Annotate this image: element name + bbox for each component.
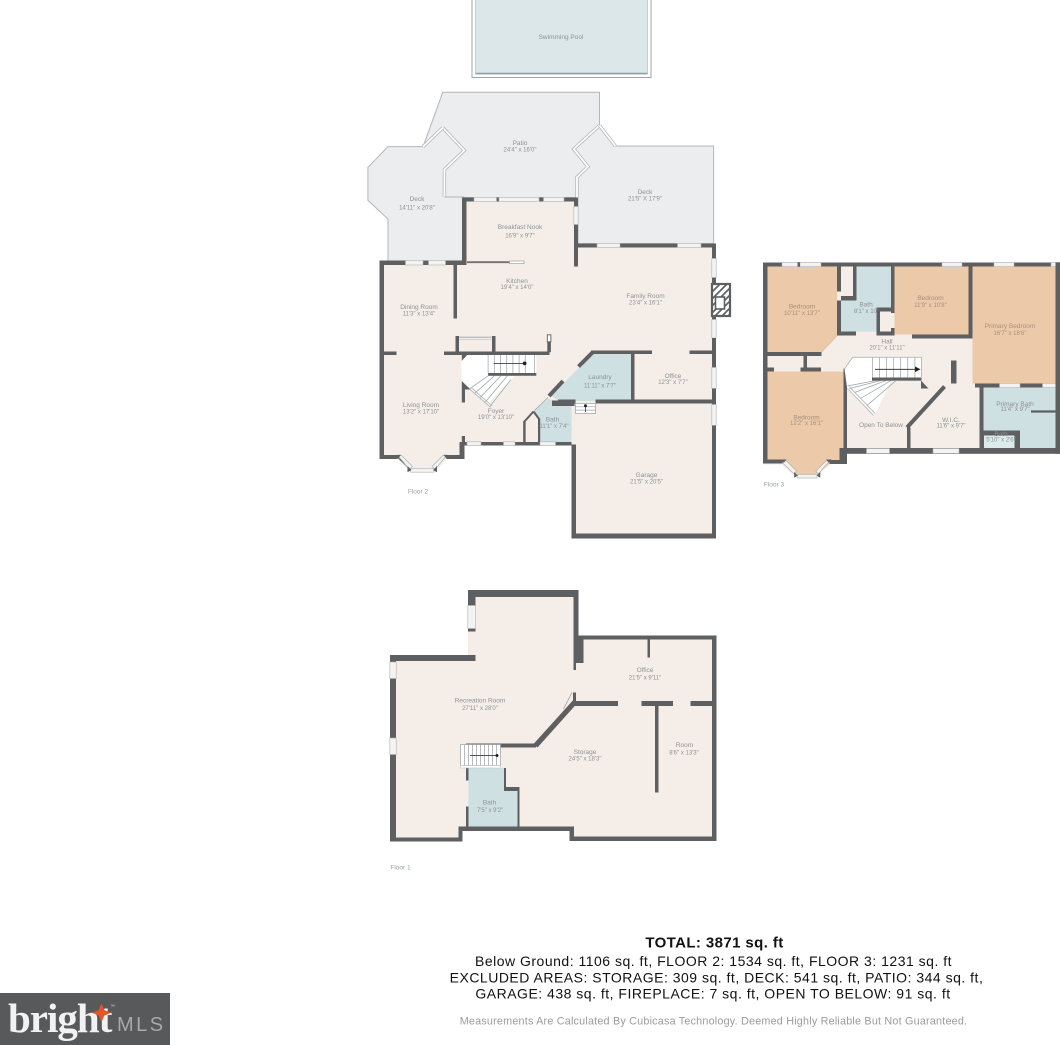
svg-text:Below Ground: 1106 sq. ft, FLO: Below Ground: 1106 sq. ft, FLOOR 2: 1534… <box>475 953 952 969</box>
svg-text:bright: bright <box>8 995 113 1041</box>
svg-text:19'0" x 13'10": 19'0" x 13'10" <box>478 415 514 421</box>
svg-text:™: ™ <box>110 1004 115 1010</box>
svg-text:14'11" x 20'8": 14'11" x 20'8" <box>399 206 435 212</box>
svg-text:23'4" x 16'1": 23'4" x 16'1" <box>629 301 662 307</box>
svg-text:Bedroom: Bedroom <box>917 295 943 302</box>
svg-text:21'5" X 17'9": 21'5" X 17'9" <box>628 197 662 203</box>
svg-text:Deck: Deck <box>638 189 654 196</box>
svg-text:13'2" x 17'10": 13'2" x 17'10" <box>403 409 439 415</box>
svg-text:EXCLUDED AREAS: STORAGE: 309 s: EXCLUDED AREAS: STORAGE: 309 sq. ft, DEC… <box>450 970 984 986</box>
svg-text:21'5" x 9'11": 21'5" x 9'11" <box>629 676 661 682</box>
svg-text:Floor 3: Floor 3 <box>764 482 785 489</box>
svg-text:16'7" x 18'6": 16'7" x 18'6" <box>994 331 1027 337</box>
svg-text:12'3" x 7'7": 12'3" x 7'7" <box>658 380 688 386</box>
svg-text:11'9" x 10'8": 11'9" x 10'8" <box>914 303 946 309</box>
svg-text:Bath: Bath <box>546 417 560 424</box>
svg-text:Swimming Pool: Swimming Pool <box>539 34 584 41</box>
svg-text:10'11" x 13'7": 10'11" x 13'7" <box>784 311 820 317</box>
svg-text:TOTAL: 3871 sq. ft: TOTAL: 3871 sq. ft <box>645 935 783 952</box>
svg-text:11'1" x 7'4": 11'1" x 7'4" <box>539 424 568 430</box>
svg-text:Bath: Bath <box>859 302 873 309</box>
svg-text:Office: Office <box>665 373 682 380</box>
svg-text:Floor 2: Floor 2 <box>408 489 429 496</box>
svg-text:Garage: Garage <box>636 472 658 479</box>
svg-text:Office: Office <box>637 667 654 674</box>
svg-text:24'5" x 18'3": 24'5" x 18'3" <box>569 757 602 763</box>
svg-text:12'2" x 16'1": 12'2" x 16'1" <box>790 421 823 427</box>
svg-text:Open To Below: Open To Below <box>859 422 903 429</box>
svg-text:8'1" x 10': 8'1" x 10' <box>854 309 878 315</box>
svg-text:11'3" x 13'4": 11'3" x 13'4" <box>403 311 435 317</box>
svg-text:Family Room: Family Room <box>626 293 664 300</box>
svg-text:24'4" x 16'0": 24'4" x 16'0" <box>504 148 537 154</box>
svg-text:MLS: MLS <box>117 1014 166 1036</box>
svg-text:Measurements Are Calculated By: Measurements Are Calculated By Cubicasa … <box>460 1016 968 1028</box>
svg-text:Room: Room <box>676 742 693 749</box>
svg-text:7'5" x 9'2": 7'5" x 9'2" <box>477 808 503 814</box>
svg-text:Laundry: Laundry <box>588 374 612 381</box>
svg-text:Dining Room: Dining Room <box>400 304 438 311</box>
svg-text:Recreation Room: Recreation Room <box>455 698 506 705</box>
svg-text:Storage: Storage <box>574 749 597 756</box>
svg-text:19'4" x 14'0": 19'4" x 14'0" <box>501 285 534 291</box>
svg-text:27'11" x 28'0": 27'11" x 28'0" <box>462 706 498 712</box>
svg-text:11'6" x 9'7": 11'6" x 9'7" <box>936 423 965 429</box>
svg-text:Living Room: Living Room <box>403 402 439 409</box>
svg-text:Patio: Patio <box>513 140 528 147</box>
svg-text:Breakfast Nook: Breakfast Nook <box>498 224 543 231</box>
svg-text:20'1" x 11'11": 20'1" x 11'11" <box>869 345 904 351</box>
svg-text:Bath: Bath <box>483 800 497 807</box>
svg-text:Bedroom: Bedroom <box>789 304 815 311</box>
svg-text:Primary Bedroom: Primary Bedroom <box>985 323 1036 330</box>
svg-text:21'5" x 20'5": 21'5" x 20'5" <box>630 480 663 486</box>
svg-text:Foyer: Foyer <box>488 408 505 415</box>
svg-text:Kitchen: Kitchen <box>506 278 528 285</box>
svg-text:GARAGE: 438 sq. ft, FIREPLACE:: GARAGE: 438 sq. ft, FIREPLACE: 7 sq. ft,… <box>475 986 950 1002</box>
svg-text:16'9" x 9'7": 16'9" x 9'7" <box>505 234 535 240</box>
svg-text:Deck: Deck <box>410 196 426 203</box>
svg-text:11'4" x 9'7": 11'4" x 9'7" <box>1000 407 1029 413</box>
svg-text:8'6" x 13'3": 8'6" x 13'3" <box>669 751 699 757</box>
svg-text:11'11" x 7'7": 11'11" x 7'7" <box>584 384 616 390</box>
svg-text:5'10" x 2'6": 5'10" x 2'6" <box>986 438 1016 444</box>
svg-text:Floor 1: Floor 1 <box>390 865 411 872</box>
